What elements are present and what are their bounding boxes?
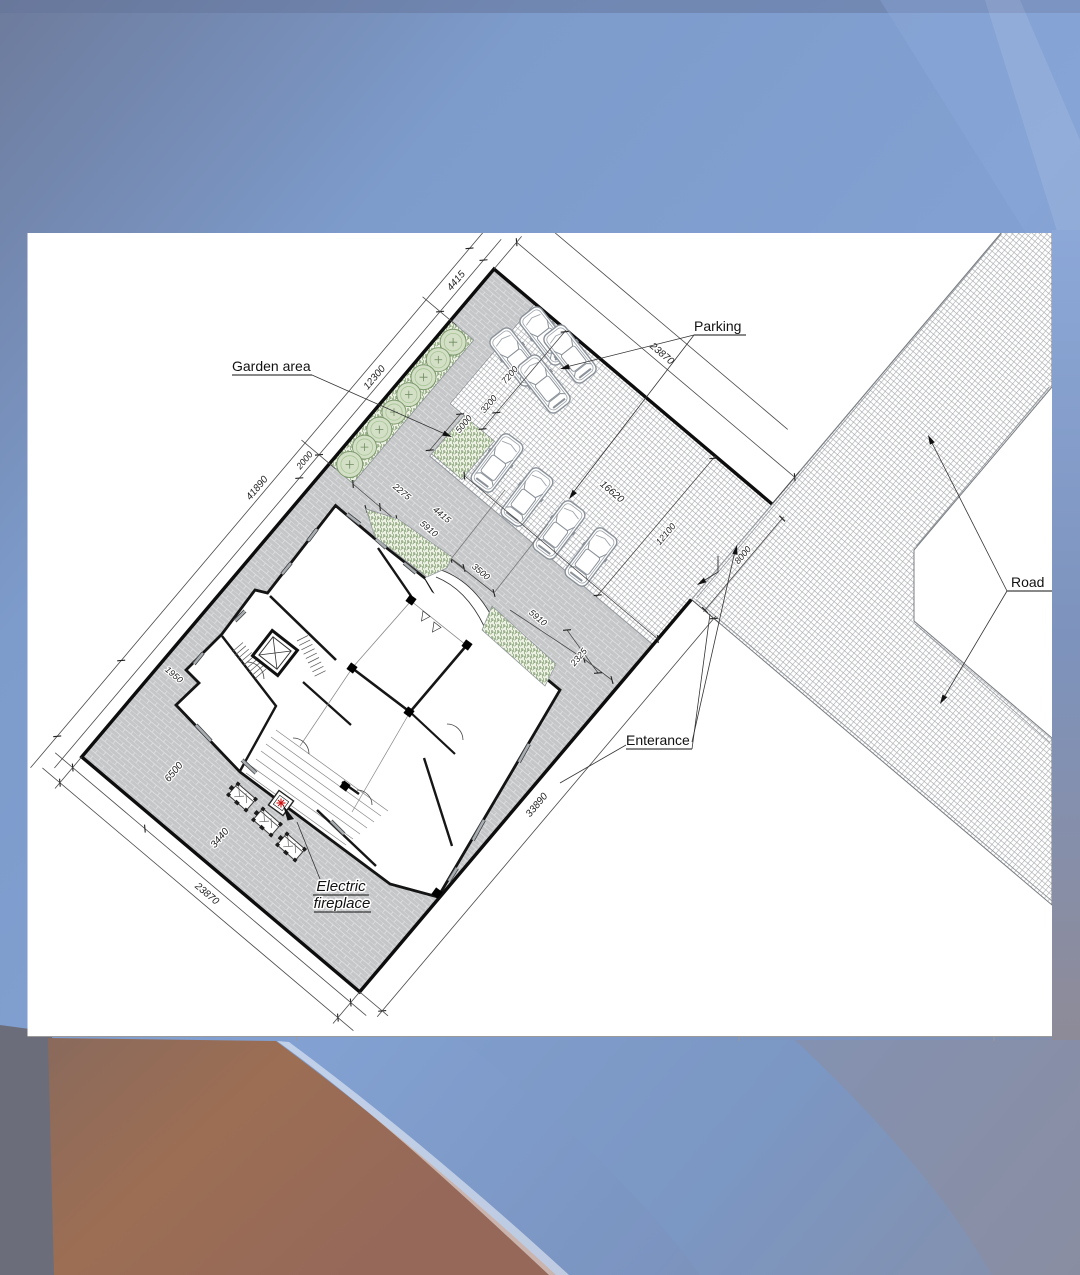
svg-text:Road: Road <box>1011 574 1044 590</box>
svg-text:fireplace: fireplace <box>314 895 371 912</box>
svg-text:Electric: Electric <box>316 878 366 895</box>
svg-text:Parking: Parking <box>694 318 741 334</box>
svg-text:Enterance: Enterance <box>626 732 690 748</box>
svg-text:Garden area: Garden area <box>232 358 311 374</box>
